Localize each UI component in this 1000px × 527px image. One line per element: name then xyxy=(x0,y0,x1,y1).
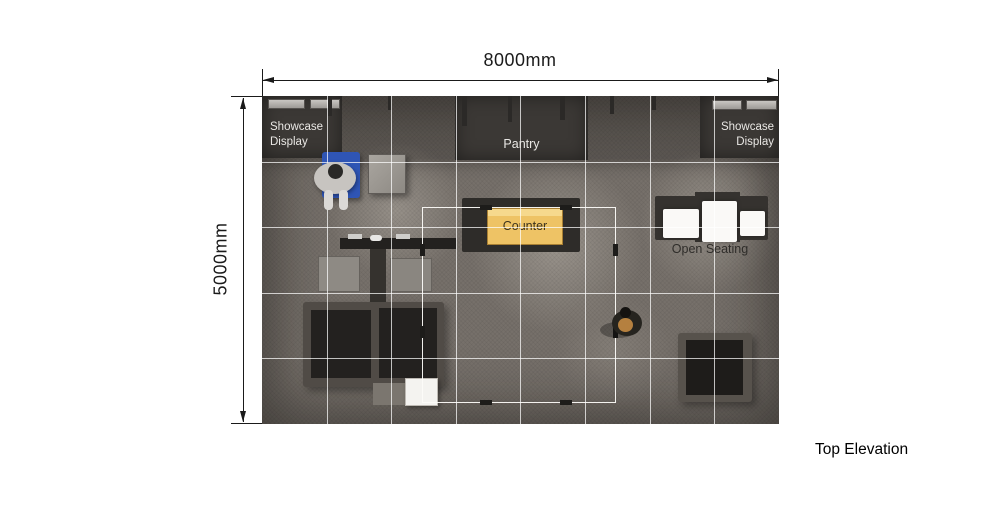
truss-tick xyxy=(613,244,618,256)
truss-tick xyxy=(420,326,425,338)
showcase-left-label: Showcase Display xyxy=(270,120,336,150)
side-table xyxy=(368,154,406,194)
display-shelf xyxy=(310,99,340,109)
grid-line xyxy=(262,358,779,359)
standing-person-head xyxy=(620,307,631,318)
pantry-fixture xyxy=(508,96,512,122)
open-seat xyxy=(702,201,737,242)
extension-line xyxy=(262,69,263,96)
extension-line xyxy=(231,423,262,424)
wall-fixture xyxy=(652,96,656,110)
grid-line xyxy=(262,227,779,228)
truss-tick xyxy=(480,205,492,210)
stool-gray xyxy=(373,383,405,405)
wall-fixture xyxy=(328,96,332,116)
desk-item xyxy=(396,234,410,239)
view-caption: Top Elevation xyxy=(815,441,908,459)
height-dimension-label: 5000mm xyxy=(211,222,232,295)
pantry-fixture xyxy=(462,96,467,126)
pantry-label: Pantry xyxy=(455,136,588,152)
desk-chair xyxy=(318,256,360,292)
truss-tick xyxy=(480,400,492,405)
wall-fixture xyxy=(610,96,614,114)
grid-line xyxy=(391,96,392,424)
display-shelf xyxy=(746,100,777,110)
display-shelf xyxy=(712,100,742,110)
truss-tick xyxy=(420,244,425,256)
extension-line xyxy=(231,96,262,97)
grid-line xyxy=(650,96,651,424)
width-dimension-label: 8000mm xyxy=(430,50,610,71)
pantry-fixture xyxy=(560,96,565,120)
open-seat xyxy=(740,211,765,236)
floor-plan: Counter Open Seating xyxy=(262,96,779,424)
seated-person-leg xyxy=(339,190,348,210)
open-seating-label: Open Seating xyxy=(645,242,775,256)
page-canvas: 8000mm 5000mm xyxy=(0,0,1000,527)
display-shelf xyxy=(268,99,305,109)
truss-tick xyxy=(560,400,572,405)
meeting-table-left-top xyxy=(311,310,371,378)
open-seat xyxy=(663,209,699,238)
showcase-right-label: Showcase Display xyxy=(706,120,774,150)
grid-line xyxy=(262,293,779,294)
standing-person-torso xyxy=(618,318,633,332)
extension-line xyxy=(778,69,779,96)
desk-item xyxy=(370,235,382,241)
width-dimension-line xyxy=(263,80,778,81)
seated-person-leg xyxy=(324,190,333,210)
overhead-structure-outline xyxy=(422,207,616,403)
desk-item xyxy=(348,234,362,239)
height-dimension-line xyxy=(243,98,244,422)
seated-person-head xyxy=(328,164,343,179)
truss-tick xyxy=(560,205,572,210)
